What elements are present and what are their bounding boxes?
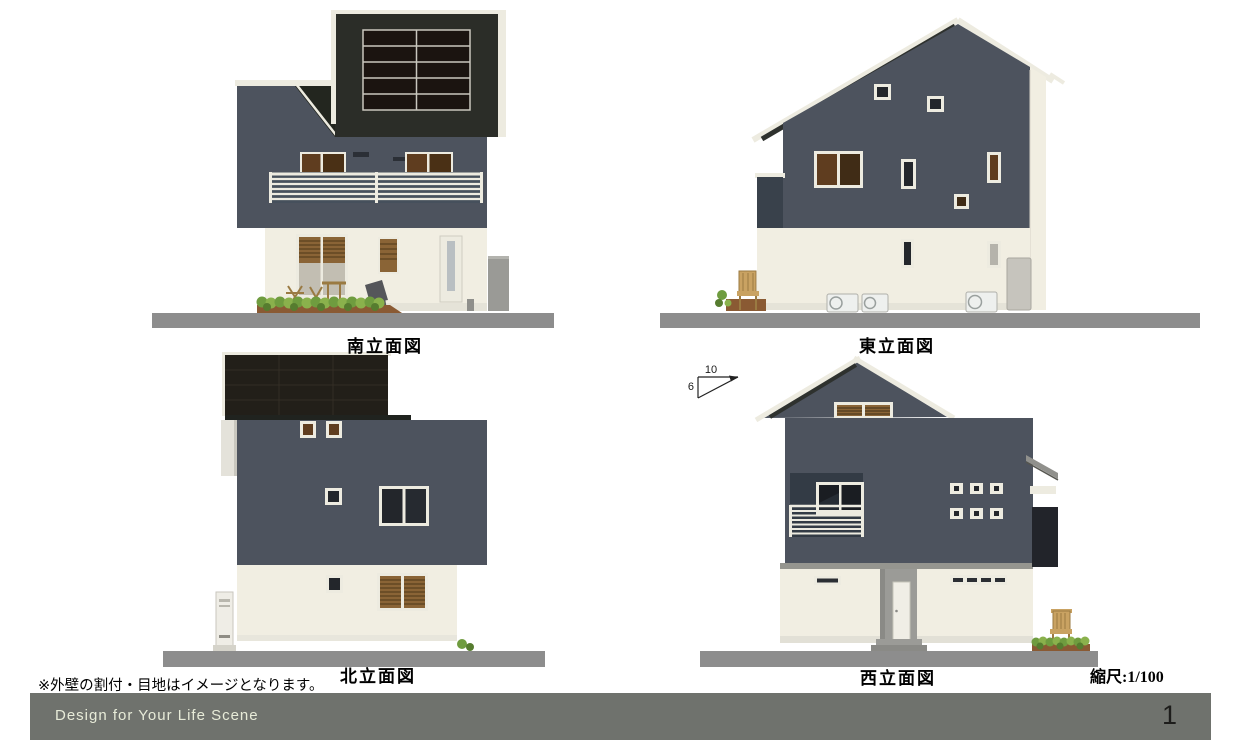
ground-line [152,313,554,328]
solar-panel-array [363,30,470,110]
roof-solar [331,10,506,137]
scale-label: 縮尺:1/100 [1090,663,1164,687]
balcony-recess [789,473,864,537]
west-elevation-drawing: 10 6 [650,345,1210,670]
corner-plant [457,639,474,651]
house-body [221,420,487,641]
west-elevation-label: 西立面図 [833,664,963,689]
pitch-run-value: 10 [705,364,717,376]
solar-roof-block [222,352,411,420]
north-elevation-drawing [150,345,570,670]
house-body [755,24,1046,310]
south-elevation-drawing [150,0,570,335]
balcony-railing [269,172,483,203]
east-elevation-drawing [650,0,1210,335]
footer-brand-text: Design for Your Life Scene [55,707,259,724]
roof-pitch-triangle: 10 6 [688,364,738,398]
ground-floor-window-small [378,237,399,274]
north-elevation-label: 北立面図 [313,662,443,687]
gable-vent [834,402,893,419]
utility-meter [213,592,236,651]
gable-roof [756,358,954,420]
east-elevation-label: 東立面図 [832,332,962,357]
exterior-wall-note: ※外壁の割付・目地はイメージとなります。 [38,674,323,695]
entry-door [440,236,462,302]
pitch-rise-value: 6 [688,381,694,393]
garden-planter [1032,637,1091,652]
south-elevation-label: 南立面図 [320,332,450,357]
elevation-sheet: 10 6 [0,0,1239,750]
ground-line [660,313,1200,328]
page-number: 1 [1162,700,1177,731]
footer-bar: Design for Your Life Scene 1 [30,693,1211,740]
